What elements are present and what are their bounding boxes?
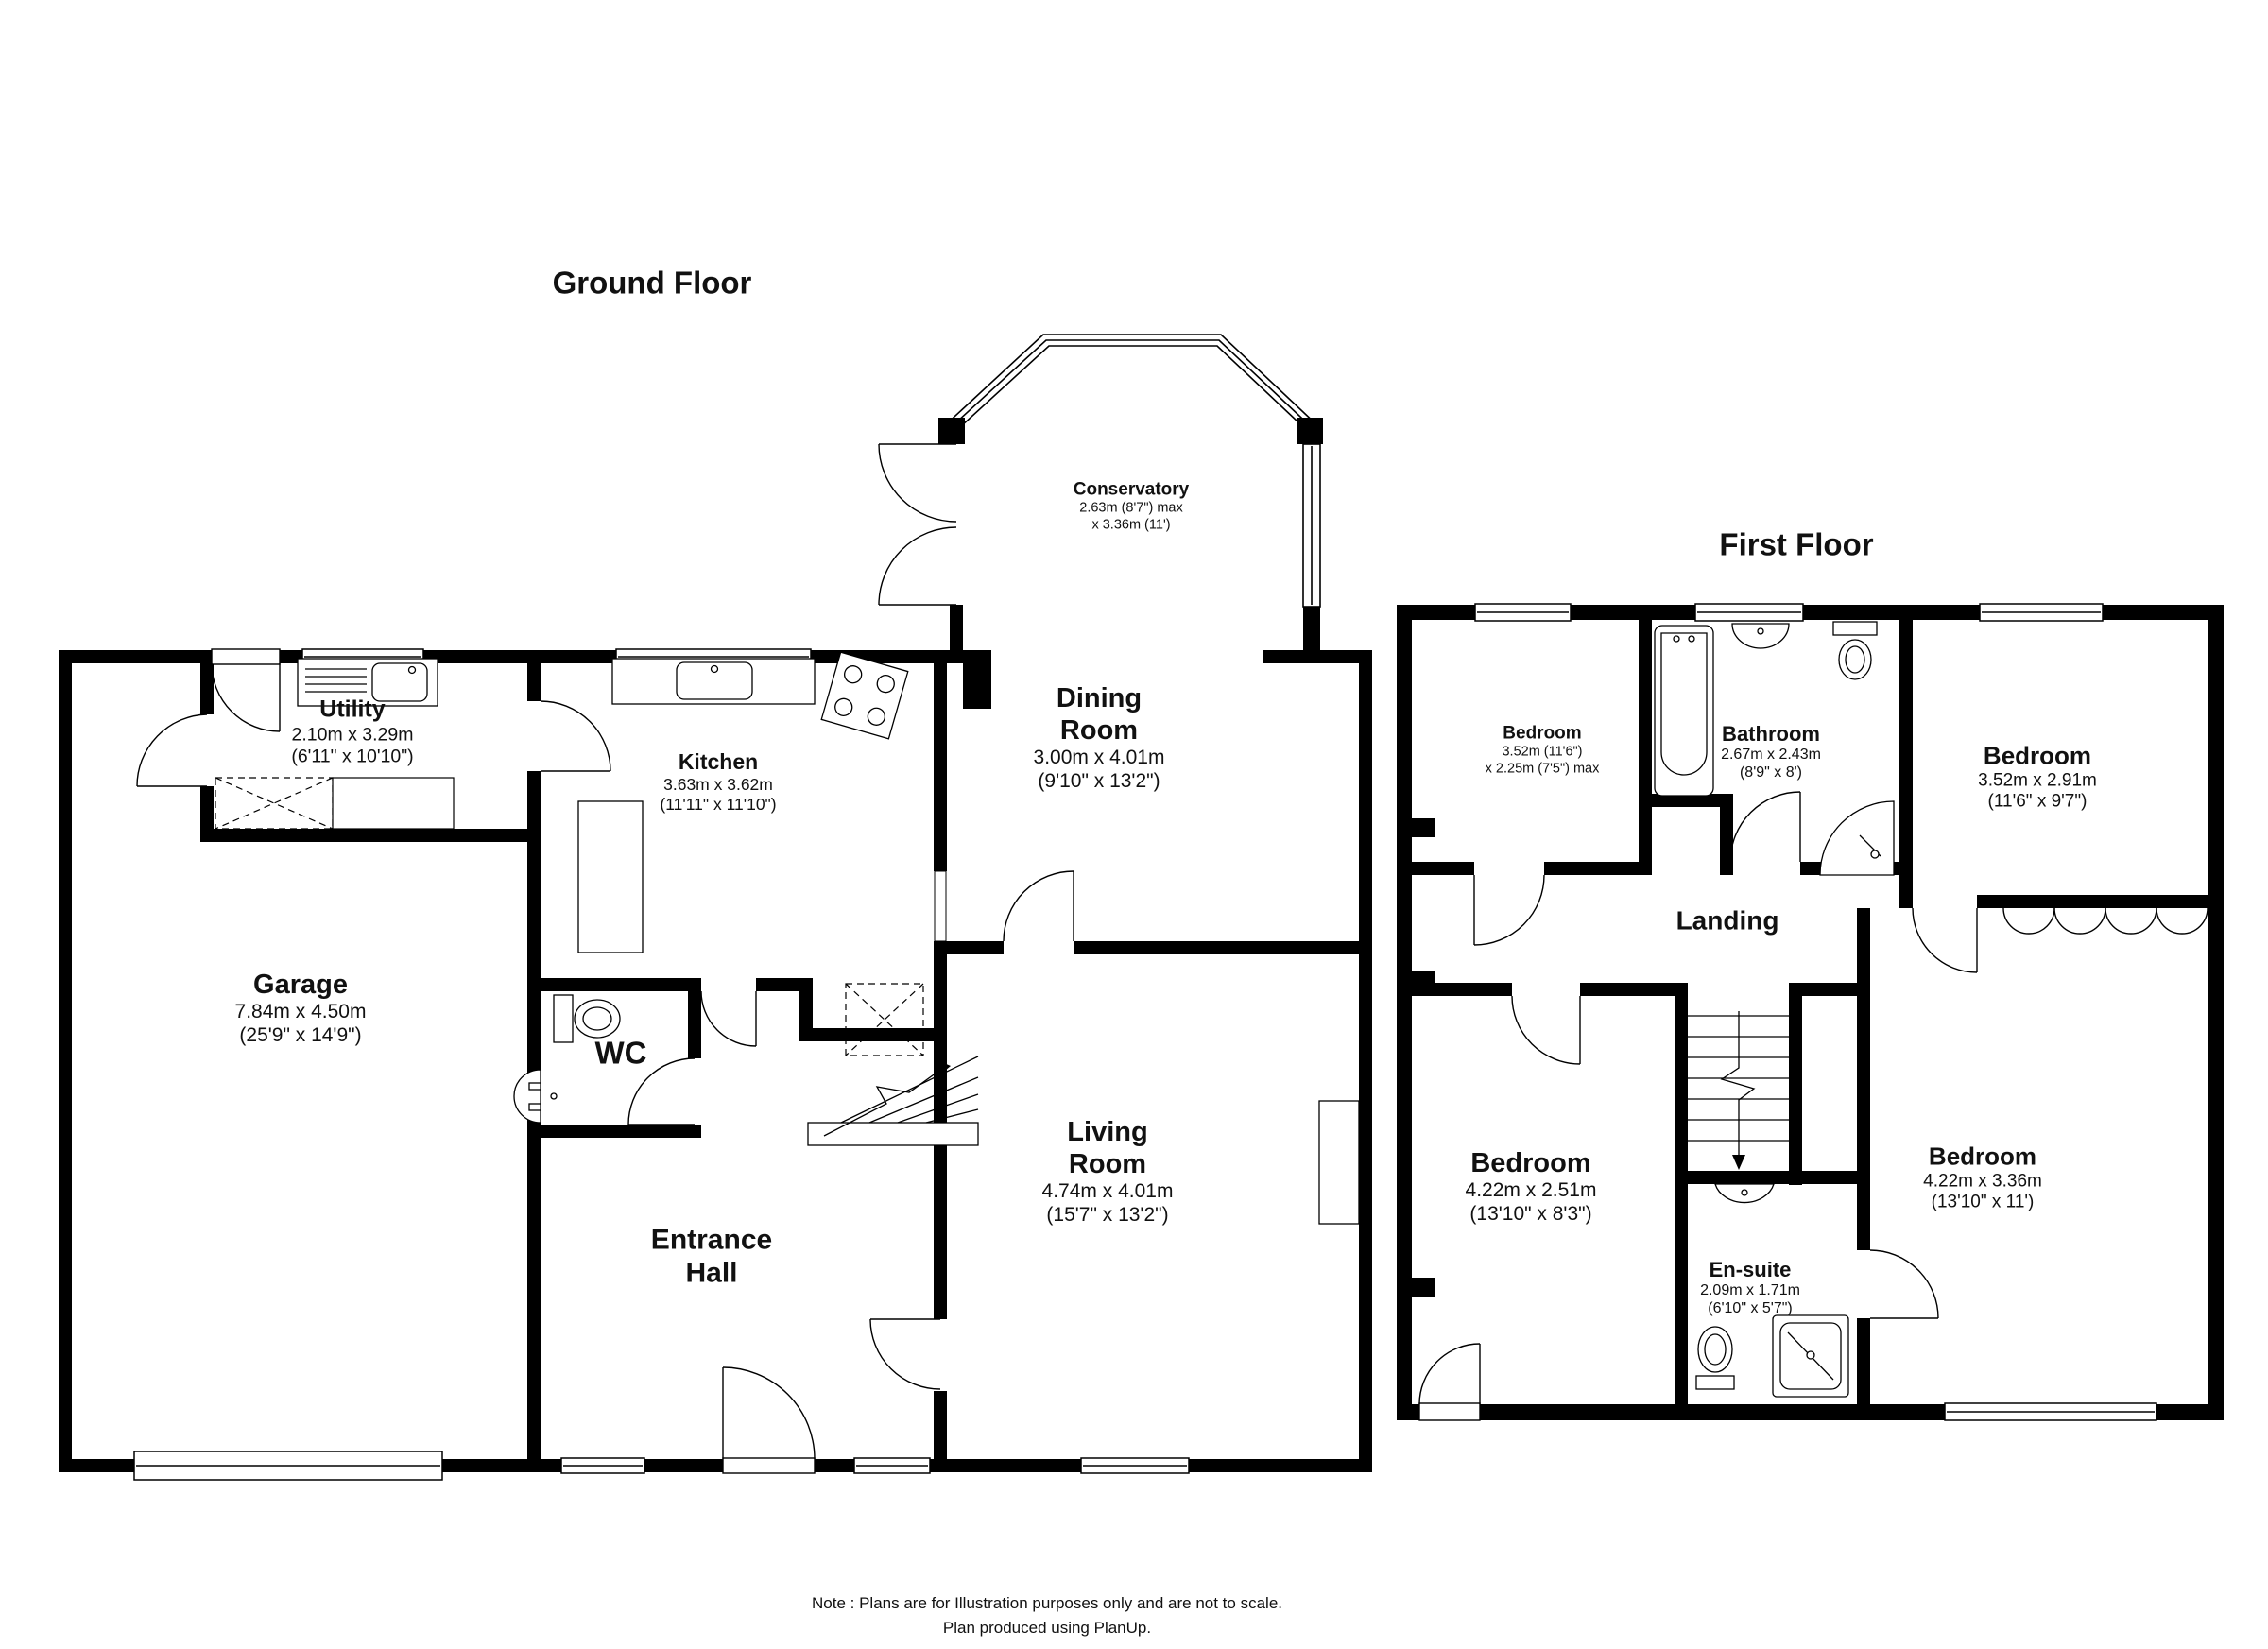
toilet-icon [1833, 622, 1877, 635]
shower-icon [1820, 801, 1894, 875]
room-label-landing: Landing [1676, 904, 1779, 936]
room-label-ensuite: En-suite 2.09m x 1.71m (6'10" x 5'7") [1700, 1258, 1800, 1318]
ground-floor-title: Ground Floor [553, 266, 752, 302]
hob-icon [821, 652, 908, 739]
room-label-dining-room: Dining Room 3.00m x 4.01m (9'10" x 13'2"… [1034, 682, 1165, 794]
floorplan-drawing [0, 0, 2268, 1649]
room-label-kitchen: Kitchen 3.63m x 3.62m (11'11" x 11'10") [660, 749, 776, 814]
first-floor-title: First Floor [1719, 527, 1873, 564]
room-label-bedroom-top-right: Bedroom 3.52m x 2.91m (11'6" x 9'7") [1978, 741, 2097, 812]
room-label-conservatory: Conservatory 2.63m (8'7") max x 3.36m (1… [1074, 480, 1190, 534]
utility-counter [333, 778, 454, 829]
basin-icon [1732, 624, 1789, 648]
room-label-living-room: Living Room 4.74m x 4.01m (15'7" x 13'2"… [1042, 1116, 1174, 1228]
room-label-bedroom-top-left: Bedroom 3.52m (11'6") x 2.25m (7'5") max [1486, 724, 1600, 778]
gf-conservatory-glazing [943, 335, 1320, 607]
room-label-bedroom-bottom-left: Bedroom 4.22m x 2.51m (13'10" x 8'3") [1466, 1147, 1597, 1227]
toilet-icon [1696, 1376, 1734, 1389]
fireplace [1319, 1101, 1359, 1224]
room-label-utility: Utility 2.10m x 3.29m (6'11" x 10'10") [291, 696, 413, 767]
ff-stairs [1688, 1011, 1789, 1170]
gf-opening [935, 871, 946, 941]
room-label-bathroom: Bathroom 2.67m x 2.43m (8'9" x 8') [1721, 722, 1821, 782]
wardrobe-doors [2003, 908, 2054, 934]
gf-doors [137, 444, 1074, 1473]
toilet-icon [554, 995, 573, 1042]
room-label-garage: Garage 7.84m x 4.50m (25'9" x 14'9") [235, 969, 367, 1048]
floorplan: Ground Floor First Floor Conservatory 2.… [0, 0, 2268, 1649]
room-label-entrance-hall: Entrance Hall [651, 1224, 772, 1291]
disclaimer-note: Note : Plans are for Illustration purpos… [812, 1591, 1282, 1640]
room-label-wc: WC [595, 1036, 647, 1073]
room-label-bedroom-bottom-right: Bedroom 4.22m x 3.36m (13'10" x 11') [1923, 1142, 2042, 1212]
entrance-door-gap [723, 1458, 815, 1473]
gf-stairs [808, 1056, 978, 1145]
basin-icon [514, 1070, 541, 1123]
